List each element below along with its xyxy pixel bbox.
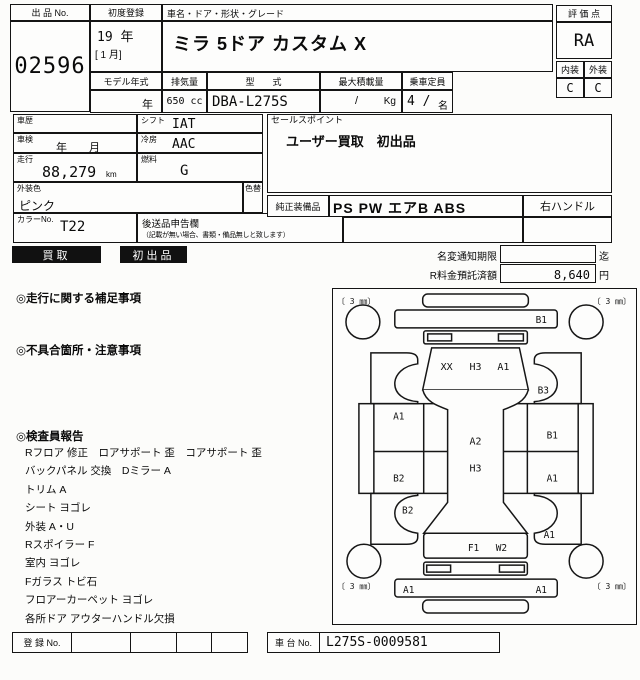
- damage-left-door-lower: B2: [393, 473, 404, 484]
- capacity-unit: 名: [438, 97, 448, 112]
- inspector-report-line: バックパネル 交換 Dミラー A: [25, 462, 325, 480]
- first-registration-header: 初度登録: [90, 4, 162, 21]
- interior-header: 内装: [556, 61, 584, 78]
- damage-rear-bumper-right: A1: [536, 585, 548, 596]
- inspector-report-line: トリム A: [25, 481, 325, 499]
- shift-cell: シフト IAT: [137, 114, 263, 133]
- auction-no-value: 02596: [10, 21, 90, 112]
- damage-rear-panel-right: W2: [496, 543, 507, 554]
- inspector-report-line: 各所ドア アウターハンドル欠損: [25, 610, 325, 628]
- registration-no-label: 登 録 No.: [13, 633, 72, 652]
- damage-right-door-lower: A1: [547, 473, 559, 484]
- score-value: RA: [556, 22, 612, 59]
- rear-lamp-right-shape: [499, 565, 524, 572]
- registration-no-cell: [131, 633, 177, 652]
- shift-label: シフト: [141, 116, 165, 125]
- damage-right-rear-fender: A1: [544, 530, 556, 541]
- body-color-label: 外装色: [17, 184, 41, 193]
- fuel-cell: 燃料 G: [137, 153, 263, 182]
- front-cowl-shape: [424, 331, 528, 344]
- score-header: 評 価 点: [556, 5, 612, 22]
- damage-rear-bumper-left: A1: [403, 585, 415, 596]
- front-fender-left-shape: [371, 353, 418, 404]
- rear-bumper-shape: [395, 579, 557, 597]
- damage-roof-lower: H3: [470, 463, 482, 474]
- defects-heading: ◎不具合箇所・注意事項: [16, 342, 141, 358]
- inspector-report-line: フロアーカーペット ヨゴレ: [25, 591, 325, 609]
- inspector-report-line: 外装 A・U: [25, 518, 325, 536]
- car-name-header: 車名・ドア・形状・グレード: [162, 4, 553, 21]
- ac-cell: 冷房 AAC: [137, 133, 263, 153]
- buyback-badge: 買取: [12, 246, 101, 263]
- interior-grade: C: [556, 78, 584, 98]
- displacement-header: 排気量: [162, 72, 207, 90]
- ac-label: 冷房: [141, 135, 157, 144]
- tread-depth-front-left: 〔 3 ㎜〕: [337, 297, 375, 306]
- mileage-value: 88,279: [42, 163, 96, 181]
- steering-extra-cell: [523, 217, 612, 243]
- model-year-value: 年: [90, 90, 162, 113]
- first-registration-cell: 19 年 [ 1 月]: [90, 21, 162, 72]
- max-load-value: /: [355, 95, 358, 107]
- front-bumper-shape: [395, 310, 557, 328]
- mileage-label: 走行: [17, 155, 33, 164]
- tread-depth-front-right: 〔 3 ㎜〕: [593, 297, 631, 306]
- damage-left-rear-fender: B2: [402, 505, 413, 516]
- inspector-report-line: シート ヨゴレ: [25, 499, 325, 517]
- damage-rear-panel-left: F1: [468, 543, 480, 554]
- inspector-report-list: Rフロア 修正 ロアサポート 歪 コアサポート 歪 バックパネル 交換 Dミラー…: [25, 444, 325, 628]
- name-change-deadline-suffix: 迄: [599, 248, 609, 263]
- steering-cell: 右ハンドル: [523, 195, 612, 217]
- capacity-value: 4 /: [407, 94, 430, 109]
- front-lamp-right-shape: [498, 334, 523, 341]
- max-load-cell: / Kg: [320, 90, 402, 113]
- rear-bumper-bottom-shape: [423, 600, 529, 613]
- inspector-report-line: Fガラス トビ石: [25, 573, 325, 591]
- damage-left-door: A1: [393, 412, 405, 423]
- max-load-unit: Kg: [384, 96, 396, 107]
- sales-point-cell: セールスポイント ユーザー買取 初出品: [267, 114, 612, 193]
- mileage-unit: km: [106, 170, 117, 179]
- chassis-no-table: 車 台 No. L275S-0009581: [267, 632, 500, 653]
- later-items-note: （記載が無い場合、書類・備品無しと致します）: [142, 230, 289, 240]
- inspection-label: 車検: [17, 135, 33, 144]
- rear-lamp-left-shape: [427, 565, 451, 572]
- history-cell: 車歴: [13, 114, 137, 133]
- chassis-no-label: 車 台 No.: [268, 633, 320, 652]
- sales-point-label: セールスポイント: [271, 116, 343, 125]
- registration-no-cell: [177, 633, 212, 652]
- fuel-label: 燃料: [141, 155, 157, 164]
- inspector-report-line: Rスポイラー F: [25, 536, 325, 554]
- equipment-value: PS PW エアB ABS: [329, 195, 523, 217]
- inspector-report-line: Rフロア 修正 ロアサポート 歪 コアサポート 歪: [25, 444, 325, 462]
- body-color-value: ピンク: [19, 197, 55, 214]
- recycle-fee-label: R料金預託済額: [398, 267, 497, 282]
- mileage-supplement-heading: ◎走行に関する補足事項: [16, 290, 141, 306]
- rear-fender-left-shape: [371, 493, 418, 544]
- model-year-header: モデル年式: [90, 72, 162, 90]
- fuel-value: G: [180, 163, 188, 179]
- car-name-value: ミラ 5ドア カスタム X: [162, 21, 553, 72]
- roof-column-shape: [423, 390, 529, 534]
- vehicle-diagram-frame: 〔 3 ㎜〕 〔 3 ㎜〕 〔 3 ㎜〕 〔 3 ㎜〕 B1 XX H3 A1 …: [332, 288, 637, 625]
- damage-right-door: B1: [547, 431, 559, 442]
- damage-hood-left: XX: [441, 362, 453, 373]
- vehicle-diagram: 〔 3 ㎜〕 〔 3 ㎜〕 〔 3 ㎜〕 〔 3 ㎜〕 B1 XX H3 A1 …: [333, 289, 635, 623]
- equipment-extra-cell: [343, 217, 523, 243]
- damage-hood-right: A1: [497, 362, 509, 373]
- exterior-grade: C: [584, 78, 612, 98]
- registration-no-cell: [212, 633, 247, 652]
- recycle-fee-amount: 8,640: [500, 264, 596, 283]
- sales-point-value: ユーザー買取 初出品: [286, 131, 416, 150]
- damage-roof-upper: A2: [470, 437, 482, 448]
- inspector-report-line: 室内 ヨゴレ: [25, 554, 325, 572]
- auction-no-header: 出 品 No.: [10, 4, 90, 21]
- chassis-no-value: L275S-0009581: [320, 633, 499, 652]
- tread-depth-rear-left: 〔 3 ㎜〕: [337, 582, 375, 591]
- color-change-label: 色替: [245, 184, 261, 193]
- rear-garnish-shape: [424, 562, 528, 575]
- inspector-report-heading: ◎検査員報告: [16, 428, 84, 444]
- displacement-value: 650 cc: [162, 90, 207, 113]
- wheel-rear-left: [347, 544, 381, 578]
- model-code-header: 型 式: [207, 72, 320, 90]
- front-lamp-left-shape: [428, 334, 452, 341]
- history-label: 車歴: [17, 116, 33, 125]
- ac-value: AAC: [172, 137, 195, 152]
- color-change-cell: 色替: [243, 182, 263, 213]
- later-items-cell: 後送品申告欄 （記載が無い場合、書類・備品無しと致します）: [137, 213, 343, 243]
- shift-value: IAT: [172, 117, 195, 132]
- damage-right-front-fender: B3: [538, 386, 549, 397]
- color-no-label: カラーNo.: [17, 215, 53, 224]
- wheel-front-right: [569, 305, 603, 339]
- first-registration-year: 19 年: [97, 26, 133, 45]
- later-items-label: 後送品申告欄: [142, 216, 199, 230]
- inspection-cell: 車検 年 月: [13, 133, 137, 153]
- mileage-cell: 走行 88,279 km: [13, 153, 137, 182]
- model-code-value: DBA-L275S: [207, 90, 320, 113]
- color-no-value: T22: [60, 219, 85, 235]
- exterior-header: 外装: [584, 61, 612, 78]
- first-listing-badge: 初出品: [120, 246, 187, 263]
- capacity-cell: 4 / 名: [402, 90, 453, 113]
- wheel-rear-right: [569, 544, 603, 578]
- registration-no-cell: [72, 633, 131, 652]
- rear-fender-right-shape: [534, 493, 581, 544]
- first-registration-month: [ 1 月]: [95, 46, 122, 61]
- wheel-front-left: [346, 305, 380, 339]
- recycle-fee-unit: 円: [599, 267, 609, 282]
- damage-hood-center: H3: [470, 362, 482, 373]
- name-change-deadline-label: 名変通知期限: [398, 248, 497, 263]
- front-bumper-top-shape: [423, 294, 529, 307]
- auction-sheet: 出 品 No. 02596 初度登録 19 年 [ 1 月] 車名・ドア・形状・…: [0, 0, 640, 680]
- max-load-header: 最大積載量: [320, 72, 402, 90]
- equipment-label: 純正装備品: [267, 195, 329, 217]
- registration-no-table: 登 録 No.: [12, 632, 248, 653]
- damage-front-bumper: B1: [536, 315, 548, 326]
- name-change-deadline-box: [500, 245, 596, 263]
- body-color-cell: 外装色 ピンク: [13, 182, 243, 213]
- capacity-header: 乗車定員: [402, 72, 453, 90]
- tread-depth-rear-right: 〔 3 ㎜〕: [593, 582, 631, 591]
- color-no-cell: カラーNo. T22: [13, 213, 137, 243]
